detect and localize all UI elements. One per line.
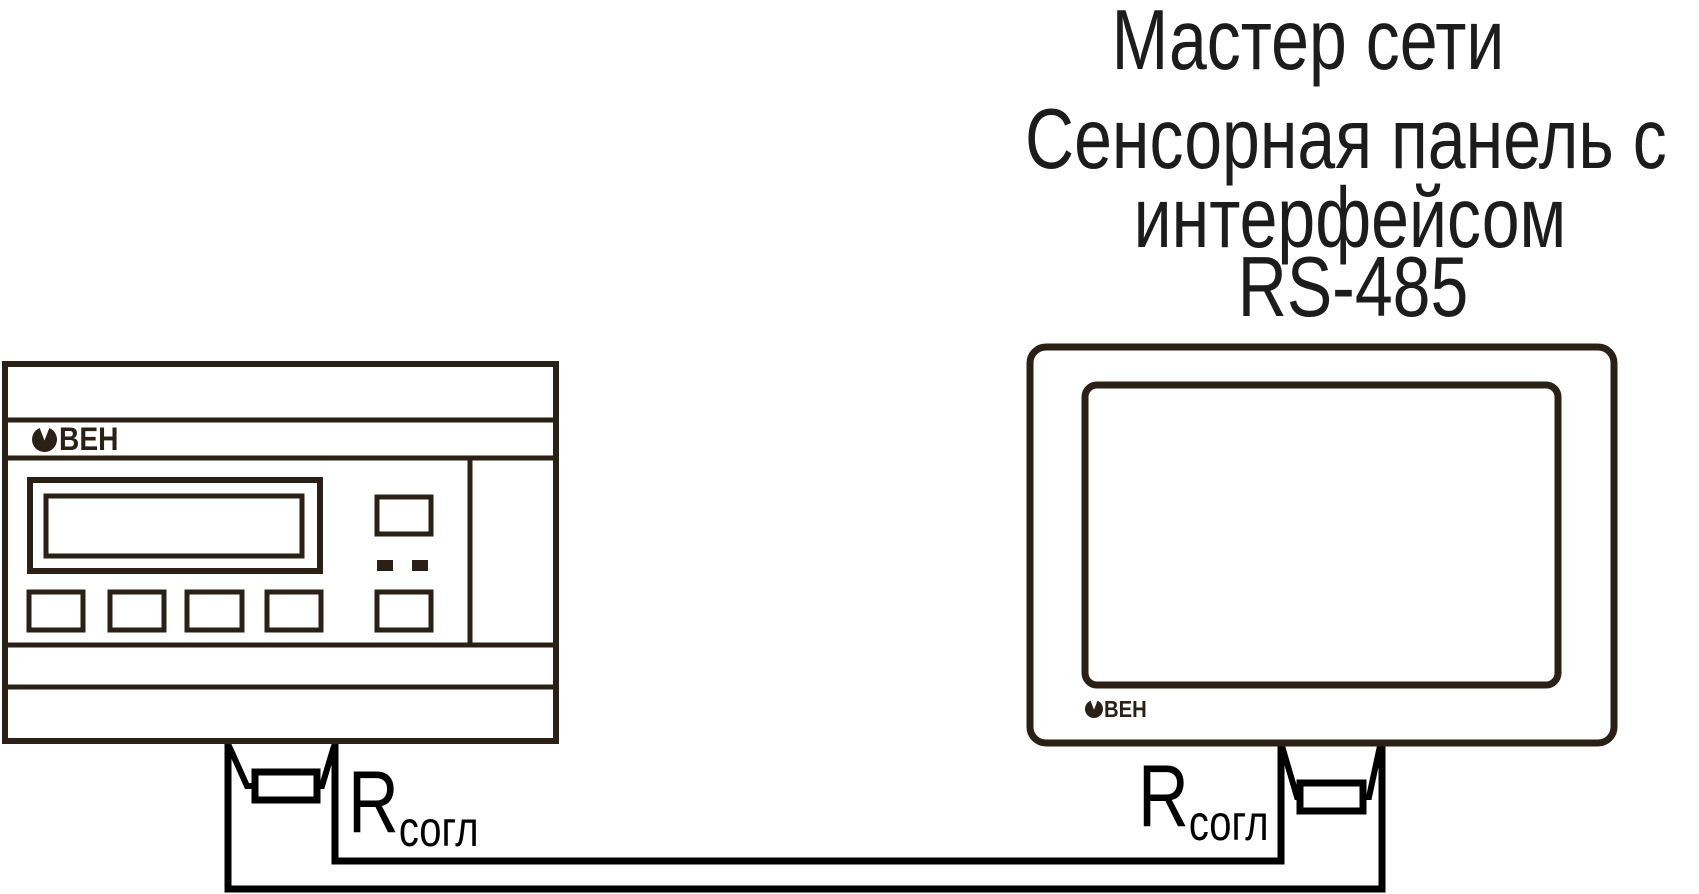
touch-panel-screen — [1085, 385, 1558, 685]
owen-circle-icon — [32, 427, 57, 452]
owen-logo-letters: ВЕН — [1104, 700, 1147, 718]
termination-resistor-right — [1282, 746, 1380, 811]
resistor-symbol: R — [1138, 746, 1189, 845]
owen-circle-icon — [1085, 700, 1103, 718]
owen-logo: ВЕН — [1085, 700, 1153, 718]
rs485-connection-diagram: Мастер сети Сенсорная панель с интерфейс… — [0, 0, 1699, 894]
owen-logo: ВЕН — [32, 427, 127, 452]
termination-resistor-left — [229, 746, 334, 800]
owen-logo-letters: ВЕН — [59, 427, 118, 452]
touch-panel-label-line3: RS-485 — [1033, 245, 1673, 330]
resistor-label-left: Rсогл — [348, 758, 479, 846]
resistor-body — [1300, 783, 1363, 811]
touch-panel-device — [1030, 347, 1614, 743]
resistor-body — [255, 772, 317, 800]
resistor-symbol: R — [348, 752, 399, 851]
touch-panel-label-line1: Сенсорная панель с — [1025, 97, 1665, 182]
resistor-subscript: согл — [1189, 795, 1269, 851]
plc-led-indicator — [412, 560, 428, 571]
plc-led-indicator — [377, 560, 393, 571]
network-master-label: Мастер сети — [988, 0, 1628, 83]
resistor-subscript: согл — [399, 801, 479, 857]
resistor-label-right: Rсогл — [1138, 752, 1269, 840]
